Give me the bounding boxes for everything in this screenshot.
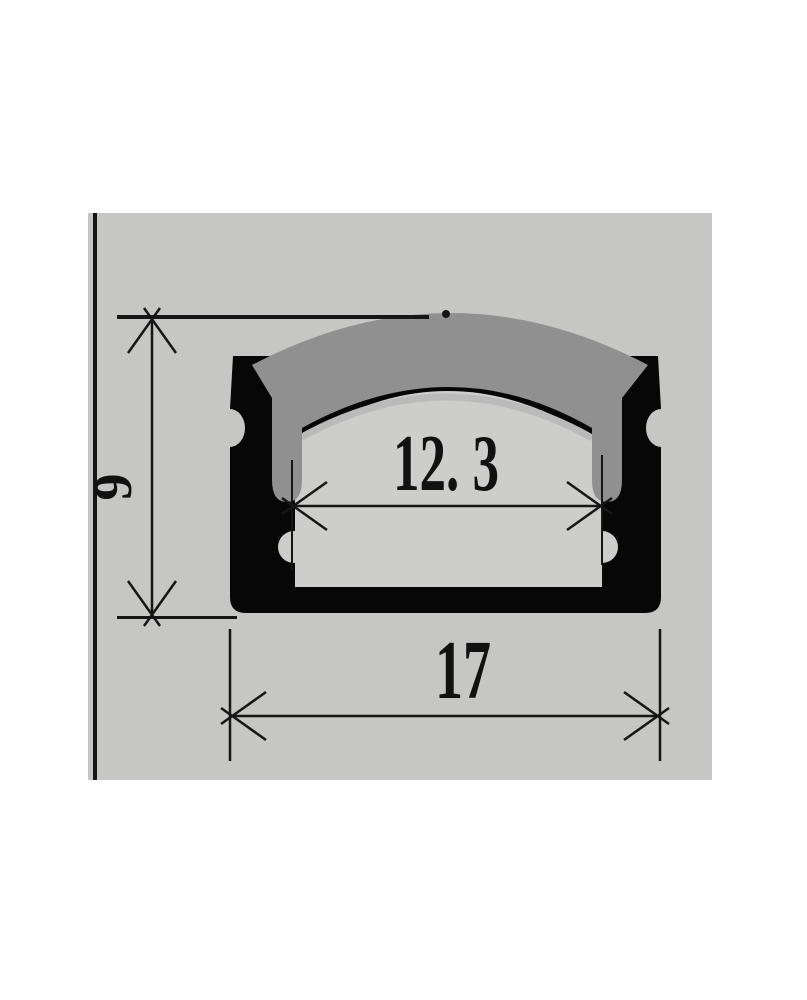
page: 9 12. 3 17 (0, 0, 807, 1000)
inner-notch-left (278, 531, 310, 563)
height-dimension-label: 9 (83, 474, 143, 501)
height-extension-line-top (117, 315, 429, 319)
height-extension-line-bottom (117, 616, 237, 619)
outer-width-dimension-label: 17 (435, 624, 491, 717)
apex-point (442, 310, 450, 318)
profile-cross-section-drawing: 9 12. 3 17 (0, 0, 807, 1000)
inner-width-dimension-label: 12. 3 (393, 420, 499, 508)
